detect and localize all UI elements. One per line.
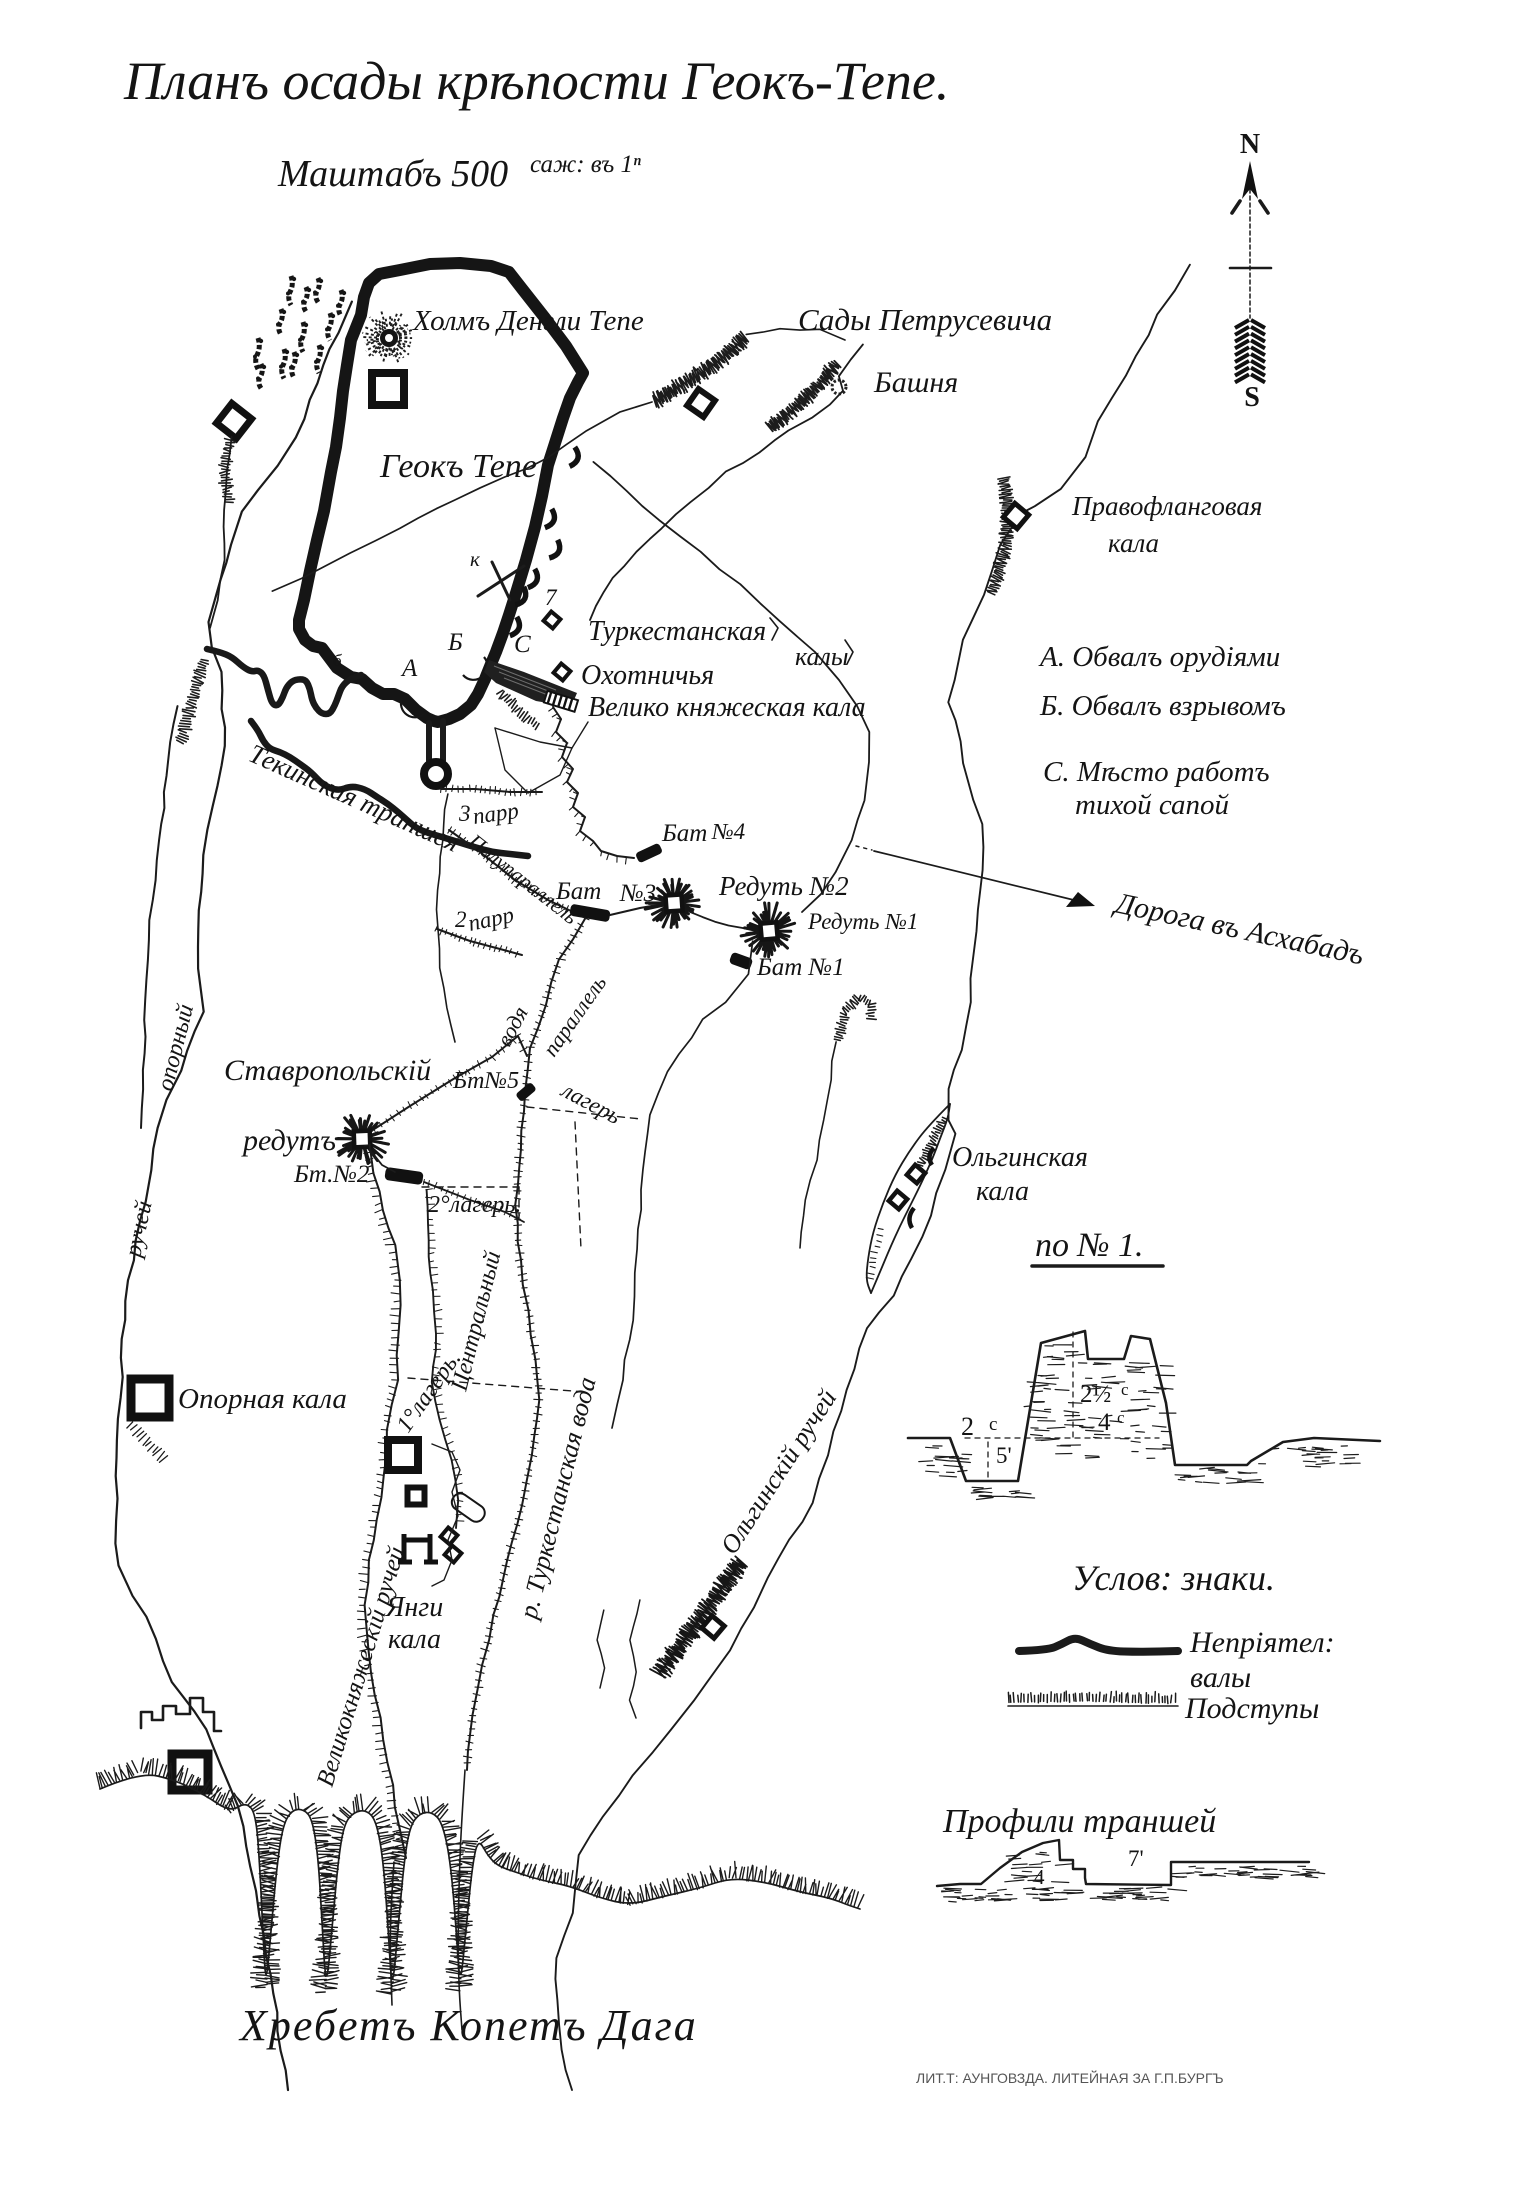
svg-text:Хребетъ Копетъ Дага: Хребетъ Копетъ Дага bbox=[238, 2001, 698, 2050]
svg-text:Б: Б bbox=[447, 629, 463, 656]
svg-text:тихой сапой: тихой сапой bbox=[1075, 789, 1229, 821]
svg-text:Ольгинская: Ольгинская bbox=[952, 1142, 1088, 1173]
svg-text:Правофланговая: Правофланговая bbox=[1071, 491, 1262, 521]
svg-text:Профили траншей: Профили траншей bbox=[942, 1803, 1216, 1840]
svg-text:редутъ: редутъ bbox=[241, 1124, 336, 1157]
svg-text:N: N bbox=[1240, 129, 1260, 160]
svg-text:валы: валы bbox=[1190, 1661, 1251, 1694]
svg-text:Редуть №1: Редуть №1 bbox=[807, 909, 918, 934]
svg-text:2: 2 bbox=[961, 1412, 974, 1441]
svg-text:4: 4 bbox=[1098, 1409, 1111, 1436]
svg-text:4: 4 bbox=[1034, 1865, 1045, 1889]
svg-text:Бат: Бат bbox=[661, 820, 707, 847]
svg-text:Маштабъ 500: Маштабъ 500 bbox=[277, 153, 508, 195]
svg-text:Холмъ Денгли Тепе: Холмъ Денгли Тепе bbox=[412, 305, 644, 337]
svg-text:Охотничья: Охотничья bbox=[581, 660, 714, 691]
svg-text:7': 7' bbox=[1128, 1846, 1144, 1871]
svg-text:к: к bbox=[470, 547, 480, 571]
svg-text:5': 5' bbox=[996, 1443, 1012, 1468]
svg-text:по № 1.: по № 1. bbox=[1035, 1227, 1144, 1264]
svg-text:Б. Обвалъ взрывомъ: Б. Обвалъ взрывомъ bbox=[1039, 690, 1286, 722]
svg-text:c: c bbox=[989, 1414, 997, 1435]
svg-text:кала: кала bbox=[1108, 528, 1159, 558]
svg-text:А: А bbox=[400, 655, 418, 682]
svg-text:Геокъ Тепе: Геокъ Тепе bbox=[379, 448, 537, 485]
svg-text:S: S bbox=[1244, 382, 1260, 413]
svg-text:Башня: Башня bbox=[873, 366, 958, 399]
svg-text:Подступы: Подступы bbox=[1184, 1692, 1319, 1725]
svg-text:2°лагерь.: 2°лагерь. bbox=[428, 1192, 521, 1218]
svg-text:Бт.№2: Бт.№2 bbox=[293, 1161, 369, 1188]
svg-text:c: c bbox=[1121, 1380, 1129, 1399]
svg-text:Планъ осады крѣпости Геокъ-Теп: Планъ осады крѣпости Геокъ-Тепе. bbox=[123, 51, 949, 111]
svg-text:3: 3 bbox=[458, 801, 471, 826]
svg-text:Непріятел:: Непріятел: bbox=[1189, 1626, 1335, 1659]
svg-text:Туркестанская: Туркестанская bbox=[588, 616, 766, 647]
svg-text:А. Обвалъ орудіями: А. Обвалъ орудіями bbox=[1038, 641, 1280, 673]
svg-text:Бат №1: Бат №1 bbox=[756, 954, 845, 981]
svg-text:Бт№5: Бт№5 bbox=[452, 1068, 519, 1094]
svg-text:Бат: Бат bbox=[555, 878, 601, 905]
svg-text:ЛИТ.Т: АУНГОВЗДА. ЛИТЕЙНАЯ ЗА: ЛИТ.Т: АУНГОВЗДА. ЛИТЕЙНАЯ ЗА Г.П.БУРГЪ bbox=[916, 2069, 1224, 2086]
svg-text:Услов: знаки.: Услов: знаки. bbox=[1072, 1558, 1275, 1598]
svg-text:Редуть №2: Редуть №2 bbox=[718, 871, 849, 901]
svg-text:№4: №4 bbox=[711, 819, 745, 844]
svg-text:Ставропольскій: Ставропольскій bbox=[224, 1054, 431, 1087]
svg-text:кала: кала bbox=[976, 1176, 1029, 1207]
svg-text:Янги: Янги bbox=[385, 1592, 443, 1623]
svg-text:б: б bbox=[333, 651, 342, 670]
svg-text:С. Мѣсто работъ: С. Мѣсто работъ bbox=[1043, 756, 1270, 788]
svg-text:7: 7 bbox=[545, 585, 558, 610]
svg-text:кала: кала bbox=[388, 1624, 441, 1655]
svg-text:Велико княжеская кала: Велико княжеская кала bbox=[588, 692, 866, 723]
svg-text:Опорная кала: Опорная кала bbox=[178, 1383, 347, 1415]
svg-text:калы: калы bbox=[795, 642, 848, 671]
svg-text:саж: въ 1ⁿ: саж: въ 1ⁿ bbox=[530, 151, 641, 178]
svg-text:Сады Петрусевича: Сады Петрусевича bbox=[798, 302, 1052, 337]
